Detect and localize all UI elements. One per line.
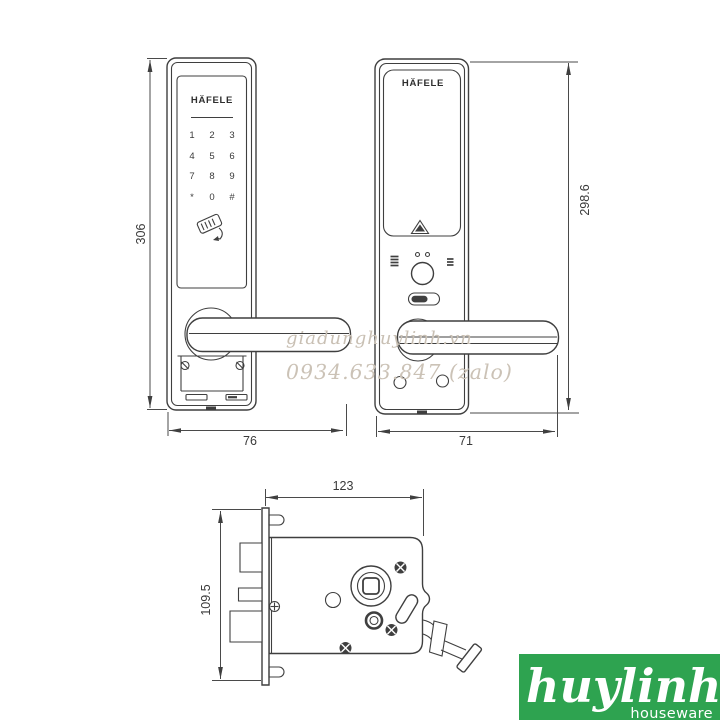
keypad-key-3: 3 [222,126,242,147]
keypad-key-8: 8 [202,167,222,188]
release-lever [394,593,420,626]
mortise-lock [212,489,482,685]
brand-logo-front: HÄFELE [177,95,247,106]
seller-logo-tagline: houseware [630,706,713,720]
status-leds [416,253,430,257]
card-swipe-icon [197,214,223,241]
seller-logo: huylinh houseware [519,654,720,720]
watermark-phone: 0934.633.847 (zalo) [286,360,513,384]
keypad-key-5: 5 [202,147,222,168]
faceplate-screw [270,602,280,612]
dimension-front-height: 306 [133,209,149,259]
dimension-back-height: 298.6 [577,170,593,230]
latch-bolt [239,588,263,601]
grip-slot [186,395,207,401]
product-technical-drawing: HÄFELE HÄFELE 1 2 3 4 5 6 7 8 9 * 0 # 30… [0,0,720,720]
round-button [412,263,434,285]
dimension-front-width: 76 [230,434,270,448]
dim-front-height [147,59,167,410]
guide-pin-bottom [269,667,284,677]
cylinder-hole [326,593,341,608]
main-bolt [230,611,262,642]
keypad-key-7: 7 [182,167,202,188]
watermark-website: giadunghuylinh.vn [286,328,473,349]
brand-logo-back: HÄFELE [388,78,458,89]
keypad-key-1: 1 [182,126,202,147]
keypad-key-hash: # [222,188,242,209]
connector-cable [423,620,482,673]
guide-pin-top [269,515,284,525]
keypad-key-star: * [182,188,202,209]
warning-triangle-icon [412,221,429,234]
lock-body [269,538,430,654]
screw [386,624,398,636]
menu-lines-right-icon [447,259,454,265]
screw [340,642,352,654]
cover-panel [384,70,461,236]
keypad-key-6: 6 [222,147,242,168]
keypad-key-0: 0 [202,188,222,209]
deadbolt [240,543,262,572]
cover-screw [181,362,189,370]
keypad: 1 2 3 4 5 6 7 8 9 * 0 # [182,126,242,208]
faceplate [262,508,269,685]
dimension-mortise-width: 123 [323,479,363,493]
dimension-mortise-height: 109.5 [198,570,214,630]
menu-lines-left-icon [391,257,399,266]
spindle-hub [351,566,391,606]
privacy-switch [409,293,440,305]
keypad-key-2: 2 [202,126,222,147]
dimension-back-width: 71 [446,434,486,448]
screw [395,562,407,574]
cable-fold [430,621,448,656]
battery-cover [178,356,248,408]
keypad-key-9: 9 [222,167,242,188]
dim-mortise-width [266,489,424,536]
keypad-key-4: 4 [182,147,202,168]
rosette [366,613,382,629]
dim-front-width [168,404,347,436]
